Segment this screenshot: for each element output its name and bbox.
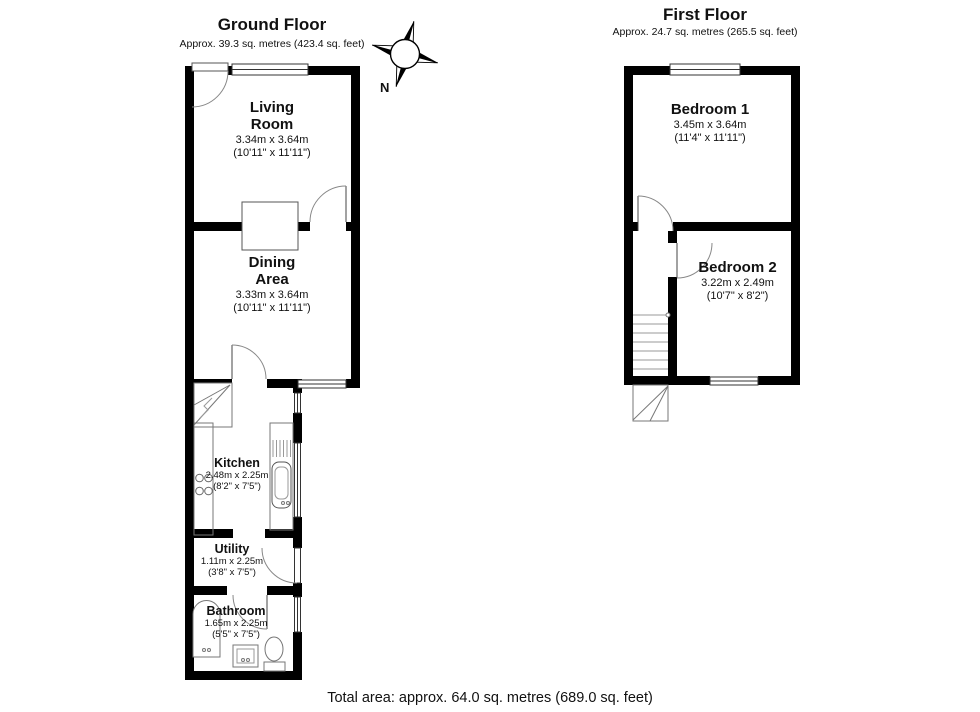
floorplan-page: Ground Floor Approx. 39.3 sq. metres (42… bbox=[0, 0, 980, 712]
kitchen-name: Kitchen bbox=[187, 456, 287, 470]
first-floor-subtitle: Approx. 24.7 sq. metres (265.5 sq. feet) bbox=[595, 26, 815, 38]
living-room-imperial: (10'11" x 11'11") bbox=[192, 147, 352, 160]
room-label-kitchen: Kitchen 2.48m x 2.25m (8'2" x 7'5") bbox=[187, 456, 287, 492]
compass-north-label: N bbox=[380, 80, 389, 95]
ground-staircase bbox=[194, 383, 232, 427]
bathroom-metric: 1.65m x 2.25m bbox=[186, 618, 286, 629]
ground-floor-subtitle: Approx. 39.3 sq. metres (423.4 sq. feet) bbox=[162, 38, 382, 50]
living-room-metric: 3.34m x 3.64m bbox=[192, 134, 352, 147]
dining-kitchen-door bbox=[232, 345, 266, 379]
room-label-bedroom-1: Bedroom 1 3.45m x 3.64m (11'4" x 11'11") bbox=[630, 102, 790, 145]
bathroom-imperial: (5'5" x 7'5") bbox=[186, 629, 286, 640]
bedroom1-door bbox=[638, 196, 673, 231]
living-room-name: Living Room bbox=[192, 100, 352, 134]
toilet-fixture bbox=[264, 637, 285, 671]
utility-name: Utility bbox=[182, 542, 282, 556]
room-label-bathroom: Bathroom 1.65m x 2.25m (5'5" x 7'5") bbox=[186, 604, 286, 640]
room-label-living-room: Living Room 3.34m x 3.64m (10'11" x 11'1… bbox=[192, 100, 352, 160]
utility-metric: 1.11m x 2.25m bbox=[182, 556, 282, 567]
bedroom-1-name: Bedroom 1 bbox=[630, 102, 790, 119]
bedroom-1-metric: 3.45m x 3.64m bbox=[630, 119, 790, 132]
bedroom-2-name: Bedroom 2 bbox=[655, 260, 820, 277]
bedroom-2-imperial: (10'7" x 8'2") bbox=[655, 290, 820, 303]
kitchen-imperial: (8'2" x 7'5") bbox=[187, 481, 287, 492]
bathroom-name: Bathroom bbox=[186, 604, 286, 618]
total-area-text: Total area: approx. 64.0 sq. metres (689… bbox=[0, 690, 980, 706]
first-floor-title: First Floor bbox=[605, 5, 805, 25]
bedroom-1-imperial: (11'4" x 11'11") bbox=[630, 132, 790, 145]
dining-area-name: Dining Area bbox=[192, 255, 352, 289]
room-label-dining-area: Dining Area 3.33m x 3.64m (10'11" x 11'1… bbox=[192, 255, 352, 315]
first-floor-staircase bbox=[633, 313, 670, 421]
ground-floor-title: Ground Floor bbox=[172, 15, 372, 35]
room-label-utility: Utility 1.11m x 2.25m (3'8" x 7'5") bbox=[182, 542, 282, 578]
living-dining-door bbox=[310, 186, 346, 222]
bathroom-sink-fixture bbox=[233, 645, 258, 667]
chimney-breast bbox=[242, 202, 298, 250]
kitchen-metric: 2.48m x 2.25m bbox=[187, 470, 287, 481]
bedroom-2-metric: 3.22m x 2.49m bbox=[655, 277, 820, 290]
dining-area-metric: 3.33m x 3.64m bbox=[192, 289, 352, 302]
room-label-bedroom-2: Bedroom 2 3.22m x 2.49m (10'7" x 8'2") bbox=[655, 260, 820, 303]
utility-imperial: (3'8" x 7'5") bbox=[182, 567, 282, 578]
dining-area-imperial: (10'11" x 11'11") bbox=[192, 302, 352, 315]
